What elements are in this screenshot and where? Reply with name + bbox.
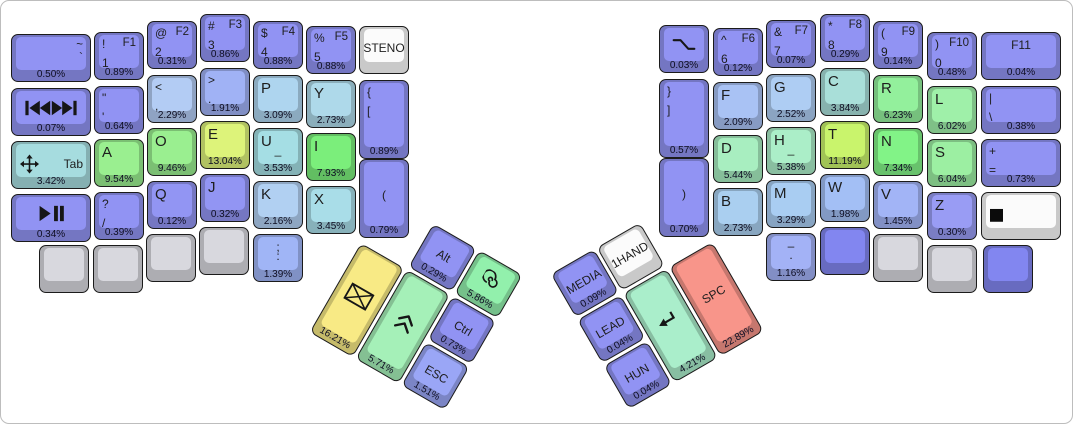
key-label: $ xyxy=(261,27,268,39)
key-plus[interactable]: +=0.73% xyxy=(981,139,1061,187)
key-label: C xyxy=(828,74,839,89)
key-usage-percent: 7.34% xyxy=(874,163,922,174)
key-usage-percent: 2.09% xyxy=(714,117,762,128)
key-usage-percent: 1.98% xyxy=(821,209,869,220)
key-option-slope[interactable]: 0.03% xyxy=(659,25,709,73)
key-e[interactable]: E13.04% xyxy=(200,121,250,169)
keycap-top xyxy=(986,89,1056,122)
key-usage-percent: 3.45% xyxy=(307,221,355,232)
key-label: < xyxy=(155,81,162,93)
key-label: } xyxy=(667,85,671,97)
key-usage-percent: 2.73% xyxy=(714,223,762,234)
key-usage-percent: 0.48% xyxy=(928,67,976,78)
key-usage-percent: 0.64% xyxy=(95,121,143,132)
key-period[interactable]: >.1.91% xyxy=(200,68,250,116)
key-q[interactable]: Q0.12% xyxy=(147,181,197,229)
stop-icon xyxy=(990,209,1003,222)
key-label: F11 xyxy=(982,39,1060,51)
key-x[interactable]: X3.45% xyxy=(306,186,356,234)
key-usage-percent: 2.52% xyxy=(767,109,815,120)
key-label: [ xyxy=(367,105,370,117)
key-blank-gray-2[interactable] xyxy=(93,245,143,293)
key-usage-percent: 0.39% xyxy=(95,227,143,238)
move-icon xyxy=(20,155,39,174)
key-y[interactable]: Y2.73% xyxy=(306,80,356,128)
key-k[interactable]: K2.16% xyxy=(253,181,303,229)
key-r[interactable]: R6.23% xyxy=(873,75,923,123)
key-usage-percent: 0.79% xyxy=(360,225,408,236)
key-label: J xyxy=(208,180,216,195)
key-usage-percent: 7.93% xyxy=(307,168,355,179)
key-s[interactable]: S6.04% xyxy=(927,139,977,187)
key-semicolon[interactable]: ;:1.39% xyxy=(253,234,303,282)
key-5[interactable]: %F550.88% xyxy=(306,26,356,74)
key-label: # xyxy=(208,20,215,32)
key-c[interactable]: C3.84% xyxy=(820,68,870,116)
key-usage-percent: 2.29% xyxy=(148,110,196,121)
key-left-brace[interactable]: {[0.89% xyxy=(359,80,409,159)
key-g[interactable]: G2.52% xyxy=(766,74,816,122)
key-label: | xyxy=(989,92,992,104)
key-m[interactable]: M3.29% xyxy=(766,180,816,228)
key-label: F6 xyxy=(742,34,755,46)
key-label: F9 xyxy=(902,27,915,39)
key-grave[interactable]: ~`0.50% xyxy=(11,34,91,82)
key-usage-percent: 0.14% xyxy=(874,56,922,67)
key-label: Tab xyxy=(64,158,83,170)
keycap-top xyxy=(44,248,84,281)
key-label: Z xyxy=(935,198,944,213)
key-label: E xyxy=(208,127,218,142)
key-label: F8 xyxy=(849,20,862,32)
keycap-top xyxy=(151,237,191,270)
key-label: ) xyxy=(935,38,939,50)
key-l[interactable]: L6.02% xyxy=(927,86,977,134)
key-usage-percent: 0.03% xyxy=(660,60,708,71)
key-usage-percent: 1.45% xyxy=(874,216,922,227)
keycap-top xyxy=(204,230,244,263)
key-z[interactable]: Z0.30% xyxy=(927,192,977,240)
key-label: & xyxy=(774,26,782,38)
key-usage-percent: 0.38% xyxy=(982,121,1060,132)
key-d[interactable]: D5.44% xyxy=(713,135,763,183)
skip-track-icon xyxy=(12,89,90,126)
key-label: T xyxy=(828,127,837,142)
key-left-paren[interactable]: (0.79% xyxy=(359,159,409,238)
key-usage-percent: 5.44% xyxy=(714,170,762,181)
key-usage-percent: 0.12% xyxy=(714,63,762,74)
key-0[interactable]: )F1000.48% xyxy=(927,32,977,80)
key-usage-percent: 9.54% xyxy=(95,174,143,185)
key-usage-percent: 13.04% xyxy=(201,156,249,167)
key-j[interactable]: J0.32% xyxy=(200,174,250,222)
key-right-brace[interactable]: }]0.57% xyxy=(659,79,709,158)
key-4[interactable]: $F440.88% xyxy=(253,21,303,69)
key-label: { xyxy=(367,86,371,98)
key-t[interactable]: T11.19% xyxy=(820,121,870,169)
key-label: ( xyxy=(881,27,885,39)
key-label: F3 xyxy=(229,20,242,32)
key-right-paren[interactable]: )0.70% xyxy=(659,158,709,237)
play-pause-icon xyxy=(12,195,90,232)
key-usage-percent: 0.12% xyxy=(148,216,196,227)
key-label: A xyxy=(102,145,112,160)
key-label: I xyxy=(314,139,318,154)
key-w[interactable]: W1.98% xyxy=(820,174,870,222)
key-label: > xyxy=(208,74,215,86)
key-blank-gray-3[interactable] xyxy=(146,234,196,282)
key-usage-percent: 1.91% xyxy=(201,103,249,114)
key-usage-percent: 0.86% xyxy=(201,49,249,60)
key-label: F2 xyxy=(176,27,189,39)
keycap-top xyxy=(878,237,918,270)
keycap-top xyxy=(98,248,138,281)
key-usage-percent: 3.84% xyxy=(821,103,869,114)
key-label: L xyxy=(935,92,943,107)
key-p[interactable]: P3.09% xyxy=(253,75,303,123)
key-usage-percent: 0.88% xyxy=(307,61,355,72)
keyboard-board: ~`0.50%0.07%Tab3.42%0.34%!F110.89%"'0.64… xyxy=(0,0,1073,424)
key-tab[interactable]: Tab3.42% xyxy=(11,141,91,189)
key-label: % xyxy=(314,32,325,44)
key-label: Q xyxy=(155,187,167,202)
key-blank-gray-5[interactable] xyxy=(873,234,923,282)
key-h[interactable]: H_5.38% xyxy=(766,127,816,175)
key-blank-purple-2[interactable] xyxy=(983,245,1033,293)
key-b[interactable]: B2.73% xyxy=(713,188,763,236)
key-usage-percent: 0.89% xyxy=(95,67,143,78)
key-usage-percent: 6.23% xyxy=(874,110,922,121)
key-blank-gray-6[interactable] xyxy=(927,245,977,293)
key-stop[interactable] xyxy=(981,192,1061,240)
key-label: V xyxy=(881,187,891,202)
key-o[interactable]: O9.46% xyxy=(147,128,197,176)
key-label: _ xyxy=(254,144,302,156)
key-usage-percent: 2.73% xyxy=(307,115,355,126)
key-a[interactable]: A9.54% xyxy=(94,139,144,187)
key-f11[interactable]: F110.04% xyxy=(981,32,1061,80)
key-minus[interactable]: –.1.16% xyxy=(766,233,816,281)
key-usage-percent: 9.46% xyxy=(148,163,196,174)
key-label: ? xyxy=(102,198,109,210)
key-3[interactable]: #F330.86% xyxy=(200,14,250,62)
key-usage-percent: 3.29% xyxy=(767,215,815,226)
key-label: _ xyxy=(767,143,815,155)
key-usage-percent: 0.30% xyxy=(928,227,976,238)
key-label: " xyxy=(102,92,106,104)
key-label: X xyxy=(314,192,324,207)
key-label: W xyxy=(828,180,842,195)
key-play-pause[interactable]: 0.34% xyxy=(11,194,91,242)
key-usage-percent: 0.50% xyxy=(12,69,90,80)
key-label: N xyxy=(881,134,892,149)
key-usage-percent: 1.39% xyxy=(254,269,302,280)
keycap-top xyxy=(932,248,972,281)
key-usage-percent: 0.32% xyxy=(201,209,249,220)
key-label: K xyxy=(261,187,271,202)
key-skip-track[interactable]: 0.07% xyxy=(11,88,91,136)
key-label: ] xyxy=(667,104,670,116)
key-usage-percent: 0.73% xyxy=(982,174,1060,185)
key-usage-percent: 2.16% xyxy=(254,216,302,227)
key-label: B xyxy=(721,194,731,209)
key-label: F xyxy=(721,88,730,103)
key-pipe[interactable]: |\0.38% xyxy=(981,86,1061,134)
key-u[interactable]: U_3.53% xyxy=(253,128,303,176)
key-usage-percent: 6.04% xyxy=(928,174,976,185)
key-usage-percent: 0.34% xyxy=(12,229,90,240)
key-usage-percent: 0.07% xyxy=(767,55,815,66)
key-usage-percent: 0.89% xyxy=(360,146,408,157)
key-blank-gray-1[interactable] xyxy=(39,245,89,293)
key-usage-percent: 1.16% xyxy=(767,268,815,279)
key-n[interactable]: N7.34% xyxy=(873,128,923,176)
key-f[interactable]: F2.09% xyxy=(713,82,763,130)
key-label: ) xyxy=(660,188,708,200)
key-label: Y xyxy=(314,86,324,101)
key-label: G xyxy=(774,80,786,95)
key-usage-percent: 0.04% xyxy=(982,67,1060,78)
key-label: ( xyxy=(360,189,408,201)
key-label: D xyxy=(721,141,732,156)
key-label: O xyxy=(155,134,167,149)
key-label: F4 xyxy=(282,27,295,39)
key-blank-gray-4[interactable] xyxy=(199,227,249,275)
key-label: F7 xyxy=(795,26,808,38)
key-label: + xyxy=(989,145,996,157)
key-label: ` xyxy=(79,51,83,63)
keycap-top xyxy=(986,142,1056,175)
key-label: M xyxy=(774,186,787,201)
key-label: F10 xyxy=(949,38,969,50)
key-usage-percent: 5.38% xyxy=(767,162,815,173)
key-1[interactable]: !F110.89% xyxy=(94,32,144,80)
keycap-top xyxy=(825,230,865,263)
keycap-top xyxy=(988,248,1028,281)
key-label: S xyxy=(935,145,945,160)
option-icon xyxy=(660,26,708,63)
key-label: F1 xyxy=(123,38,136,50)
key-usage-percent: 6.02% xyxy=(928,121,976,132)
key-quote[interactable]: "'0.64% xyxy=(94,86,144,134)
key-6[interactable]: ^F660.12% xyxy=(713,28,763,76)
key-blank-purple-1[interactable] xyxy=(820,227,870,275)
key-9[interactable]: (F990.14% xyxy=(873,21,923,69)
key-label: F5 xyxy=(335,32,348,44)
key-usage-percent: 0.31% xyxy=(148,56,196,67)
key-label: * xyxy=(828,20,833,32)
key-v[interactable]: V1.45% xyxy=(873,181,923,229)
key-7[interactable]: &F770.07% xyxy=(766,20,816,68)
key-usage-percent: 0.57% xyxy=(660,145,708,156)
key-label: . xyxy=(767,249,815,261)
key-8[interactable]: *F880.29% xyxy=(820,14,870,62)
key-comma[interactable]: <,2.29% xyxy=(147,75,197,123)
key-label: STENO xyxy=(360,42,408,54)
key-usage-percent: 0.07% xyxy=(12,123,90,134)
key-steno[interactable]: STENO xyxy=(359,26,409,74)
key-question-slash[interactable]: ?/0.39% xyxy=(94,192,144,240)
key-label: : xyxy=(254,250,302,262)
key-label: R xyxy=(881,81,892,96)
key-usage-percent: 0.70% xyxy=(660,224,708,235)
key-label: @ xyxy=(155,27,167,39)
key-label: ! xyxy=(102,38,105,50)
key-label: ^ xyxy=(721,34,727,46)
key-usage-percent: 3.53% xyxy=(254,163,302,174)
key-i[interactable]: I7.93% xyxy=(306,133,356,181)
key-label: P xyxy=(261,81,271,96)
key-usage-percent: 11.19% xyxy=(821,156,869,167)
key-usage-percent: 0.88% xyxy=(254,56,302,67)
key-2[interactable]: @F220.31% xyxy=(147,21,197,69)
key-usage-percent: 3.09% xyxy=(254,110,302,121)
key-usage-percent: 3.42% xyxy=(12,176,90,187)
key-usage-percent: 0.29% xyxy=(821,49,869,60)
